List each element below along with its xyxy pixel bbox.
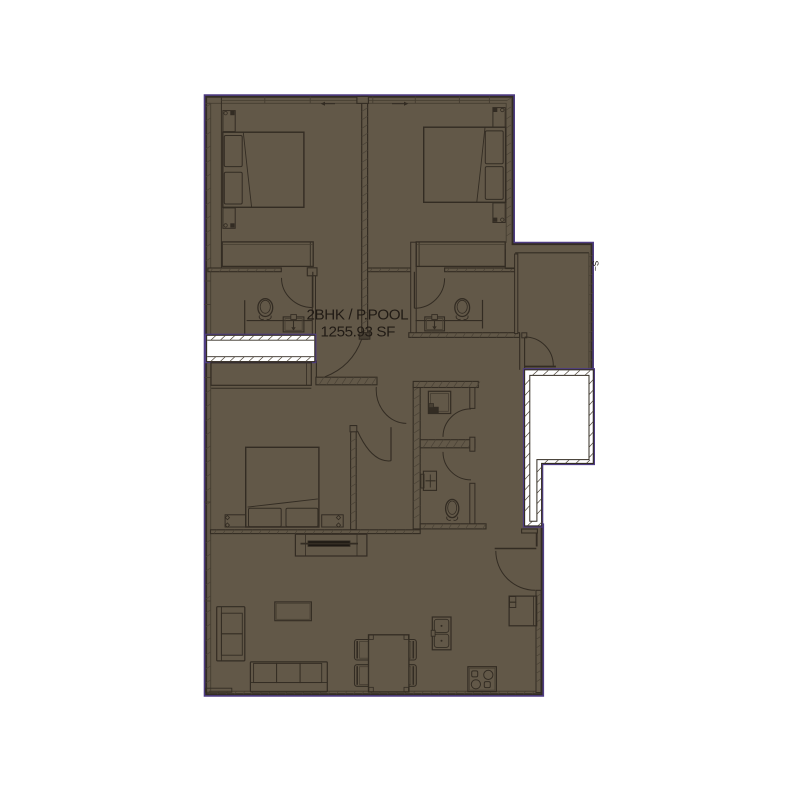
svg-text:1255.93 SF: 1255.93 SF [321, 324, 396, 341]
svg-text:2BHK / P.POOL: 2BHK / P.POOL [307, 307, 409, 324]
svg-text:S~: S~ [590, 261, 600, 272]
